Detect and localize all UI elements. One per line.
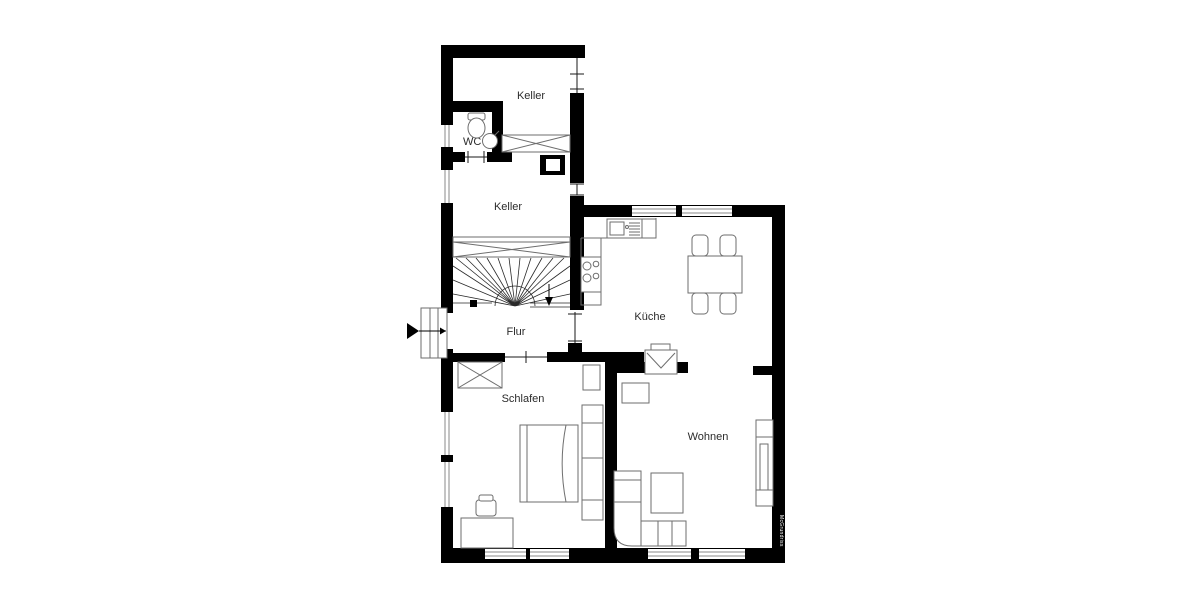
stove-icon xyxy=(581,257,601,292)
storage-hatch-band xyxy=(453,237,570,257)
kitchen-sink-icon xyxy=(607,219,656,238)
room-label-schlafen: Schlafen xyxy=(502,393,545,405)
watermark: McGrundriss xyxy=(778,515,784,547)
floor-plan-canvas: Keller WC Keller xyxy=(0,0,1200,600)
storage-hatch xyxy=(502,135,570,152)
coffee-table xyxy=(651,473,683,513)
room-keller-lower: Keller xyxy=(453,201,570,257)
closet-strip xyxy=(582,405,603,520)
desk-chair xyxy=(476,495,496,516)
bed xyxy=(520,425,578,502)
stairs xyxy=(453,258,570,307)
room-label-wohnen: Wohnen xyxy=(688,431,729,443)
room-keller-upper: Keller xyxy=(502,90,570,152)
room-flur: Flur xyxy=(407,308,526,358)
room-label-kueche: Küche xyxy=(634,311,665,323)
room-label-flur: Flur xyxy=(507,326,526,338)
entry-steps xyxy=(421,308,447,358)
shelf-unit xyxy=(756,420,773,506)
room-wohnen: Wohnen xyxy=(614,383,773,546)
room-label-keller-upper: Keller xyxy=(517,90,545,102)
toilet-icon xyxy=(468,113,485,138)
room-label-keller-lower: Keller xyxy=(494,201,522,213)
tv xyxy=(622,383,649,403)
room-kueche: Küche xyxy=(581,218,742,374)
wardrobe xyxy=(458,362,502,388)
fireplace-oven-icon xyxy=(645,344,677,374)
shelf xyxy=(583,365,600,390)
floor-plan-page: Keller WC Keller xyxy=(0,0,1200,600)
room-schlafen: Schlafen xyxy=(458,362,603,548)
dining-table xyxy=(688,256,742,293)
desk xyxy=(461,518,513,548)
